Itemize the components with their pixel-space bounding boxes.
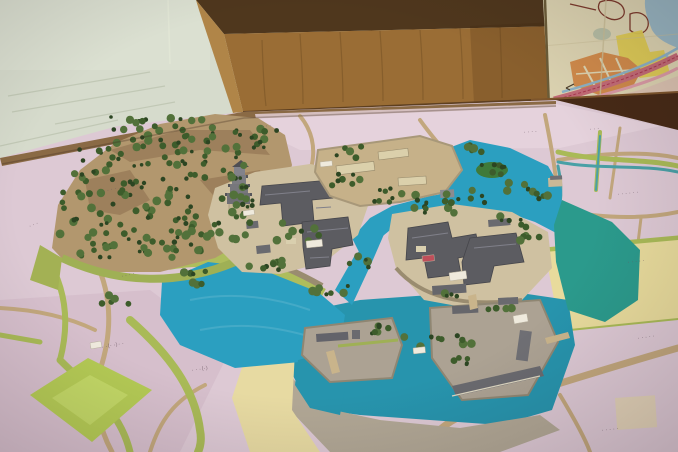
model-tree: [179, 117, 183, 121]
model-tree: [182, 215, 188, 221]
model-tree: [498, 171, 504, 177]
model-tree: [442, 198, 449, 205]
castle-town-model: · · · ·· · ·· · · ·· ·（· ·）· ·· · ·（·）· …: [0, 100, 678, 452]
model-tree: [163, 245, 171, 253]
model-tree: [209, 133, 216, 140]
model-tree: [222, 144, 230, 152]
model-tree: [161, 177, 166, 182]
model-tree: [423, 206, 429, 212]
wooden-cabinet: [196, 0, 564, 113]
model-tree: [145, 161, 151, 167]
model-tree: [131, 227, 137, 233]
model-tree: [183, 221, 188, 226]
model-tree: [137, 240, 142, 245]
red-label-tag: [422, 255, 435, 262]
model-tree: [120, 126, 127, 133]
model-tree: [121, 180, 128, 187]
model-tree: [175, 229, 182, 236]
model-tree: [492, 162, 497, 167]
model-tree: [162, 154, 168, 160]
model-tree: [240, 162, 247, 169]
model-tree: [465, 356, 470, 361]
model-tree: [519, 218, 523, 222]
model-tree: [543, 191, 552, 200]
model-tree: [354, 253, 362, 261]
model-tree: [276, 267, 281, 272]
model-tree: [188, 204, 193, 209]
model-tree: [138, 250, 142, 254]
model-tree: [234, 156, 238, 160]
model-tree: [180, 268, 188, 276]
model-tree: [456, 197, 460, 201]
model-tree: [132, 119, 139, 126]
model-tree: [250, 136, 254, 140]
south-building-4: [498, 297, 518, 305]
model-tree: [172, 239, 177, 244]
west-outbuilding-2: [256, 245, 271, 254]
model-tree: [328, 290, 334, 296]
model-tree: [188, 136, 195, 143]
model-tree: [76, 249, 84, 257]
model-tree: [173, 248, 179, 254]
model-tree: [250, 203, 255, 208]
white-label-tag: [306, 239, 323, 248]
model-tree: [534, 191, 540, 197]
model-tree: [139, 118, 146, 125]
model-tree: [429, 335, 433, 339]
south-building-2: [352, 330, 360, 339]
model-tree: [252, 145, 256, 149]
model-tree: [465, 362, 469, 366]
model-tree: [443, 190, 451, 198]
model-tree: [385, 325, 391, 331]
model-tree: [480, 163, 484, 167]
model-tree: [203, 269, 208, 274]
model-tree: [176, 236, 180, 240]
model-tree: [109, 115, 113, 119]
model-tree: [191, 272, 195, 276]
model-tree: [186, 195, 191, 200]
model-tree: [176, 216, 180, 220]
model-tree: [536, 196, 541, 201]
model-tree: [167, 114, 175, 122]
model-tree: [246, 219, 253, 226]
model-tree: [198, 281, 204, 287]
model-tree: [233, 130, 238, 135]
model-tree: [480, 194, 484, 198]
model-tree: [336, 178, 341, 183]
model-tree: [258, 140, 263, 145]
model-tree: [99, 223, 103, 227]
model-tree: [164, 199, 171, 206]
model-tree: [500, 219, 504, 223]
model-tree: [526, 188, 530, 192]
model-tree: [201, 174, 208, 181]
model-tree: [450, 209, 458, 217]
model-tree: [242, 231, 249, 238]
plot-label-text: · · · ·: [524, 129, 538, 136]
model-tree: [180, 159, 184, 163]
plot-label-text: · · ·: [590, 126, 600, 133]
model-tree: [279, 219, 286, 226]
model-tree: [244, 185, 249, 190]
model-tree: [112, 127, 117, 132]
diorama-scene: · · · ·· · ·· · · ·· ·（· ·）· ·· · ·（·）· …: [0, 0, 678, 452]
model-tree: [159, 142, 166, 149]
model-tree: [91, 170, 95, 174]
model-tree: [146, 215, 151, 220]
model-tree: [158, 138, 163, 143]
model-tree: [142, 181, 146, 185]
model-tree: [229, 191, 238, 200]
model-tree: [194, 246, 202, 254]
model-tree: [109, 154, 115, 160]
model-tree: [372, 329, 378, 335]
yellow-patch-corner: [615, 395, 657, 430]
model-tree: [250, 198, 254, 202]
model-tree: [189, 242, 193, 246]
model-tree: [233, 143, 241, 151]
model-tree: [274, 128, 279, 133]
model-tree: [228, 173, 236, 181]
model-tree: [469, 187, 476, 194]
model-tree: [203, 232, 212, 241]
model-tree: [470, 144, 479, 153]
model-tree: [98, 255, 103, 260]
model-tree: [415, 198, 420, 203]
model-tree: [376, 323, 381, 328]
model-tree: [516, 236, 525, 245]
model-tree: [181, 231, 189, 239]
model-tree: [299, 229, 304, 234]
model-tree: [140, 143, 146, 149]
model-tree: [273, 236, 282, 245]
cabinet-shade: [470, 22, 556, 104]
photo-museum-castle-diorama: · · · ·· · ·· · · ·· ·（· ·）· ·· · ·（·）· …: [0, 0, 678, 452]
model-tree: [193, 213, 199, 219]
model-tree: [212, 222, 218, 228]
model-tree: [346, 284, 350, 288]
model-tree: [110, 241, 118, 249]
model-tree: [192, 172, 198, 178]
model-tree: [167, 186, 173, 192]
model-tree: [329, 182, 335, 188]
model-tree: [398, 190, 405, 197]
model-tree: [356, 176, 363, 183]
model-tree: [72, 217, 77, 222]
model-tree: [262, 146, 266, 150]
model-tree: [136, 125, 144, 133]
model-tree: [238, 176, 242, 180]
model-tree: [132, 164, 136, 168]
model-tree: [390, 196, 394, 200]
model-tree: [455, 294, 460, 299]
model-tree: [285, 233, 292, 240]
model-tree: [80, 172, 85, 177]
model-tree: [118, 151, 124, 157]
model-tree: [61, 205, 67, 211]
white-label-tag: [413, 347, 426, 354]
model-tree: [366, 265, 371, 270]
model-tree: [116, 157, 120, 161]
model-tree: [410, 204, 418, 212]
model-tree: [233, 201, 241, 209]
model-tree: [448, 199, 455, 206]
model-tree: [503, 187, 511, 195]
wall-highlight: [0, 0, 210, 70]
model-tree: [505, 179, 513, 187]
model-tree: [228, 208, 237, 217]
model-tree: [502, 165, 506, 169]
model-tree: [159, 240, 165, 246]
model-tree: [467, 339, 476, 348]
model-tree: [174, 187, 178, 191]
model-tree: [383, 189, 388, 194]
model-tree: [455, 333, 460, 338]
model-tree: [335, 153, 339, 157]
model-tree: [144, 137, 152, 145]
model-tree: [180, 146, 188, 154]
model-tree: [56, 230, 65, 239]
model-tree: [140, 163, 144, 167]
model-tree: [172, 123, 178, 129]
model-tree: [117, 222, 123, 228]
model-tree: [246, 263, 253, 270]
model-tree: [105, 221, 109, 225]
model-tree: [353, 154, 360, 161]
model-tree: [308, 287, 317, 296]
model-tree: [378, 188, 382, 192]
model-tree: [140, 185, 144, 189]
model-tree: [166, 160, 172, 166]
model-tree: [482, 200, 487, 205]
model-tree: [121, 230, 128, 237]
model-tree: [240, 202, 245, 207]
model-tree: [468, 195, 474, 201]
model-tree: [102, 243, 110, 251]
model-tree: [324, 292, 328, 296]
model-tree: [60, 190, 66, 196]
model-tree: [346, 147, 354, 155]
model-tree: [125, 301, 131, 307]
model-tree: [388, 186, 392, 190]
model-tree: [347, 261, 352, 266]
model-tree: [143, 234, 151, 242]
model-tree: [246, 205, 250, 209]
model-tree: [111, 295, 119, 303]
model-tree: [229, 235, 237, 243]
stream-gatehouse: [548, 175, 562, 187]
model-tree: [526, 235, 532, 241]
model-tree: [502, 305, 509, 312]
model-tree: [152, 197, 161, 206]
model-tree: [449, 292, 453, 296]
model-tree: [188, 117, 195, 124]
model-tree: [507, 218, 512, 223]
model-tree: [221, 168, 227, 174]
model-tree: [149, 238, 155, 244]
plot-label-text: · · ·: [262, 123, 272, 130]
model-tree: [424, 201, 428, 205]
east-cream-building: [416, 246, 426, 252]
model-tree: [117, 190, 123, 196]
model-tree: [71, 170, 78, 177]
model-tree: [451, 357, 458, 364]
model-tree: [127, 237, 131, 241]
model-tree: [60, 200, 66, 206]
model-tree: [176, 141, 180, 145]
model-tree: [206, 140, 210, 144]
model-tree: [215, 228, 223, 236]
model-tree: [336, 172, 341, 177]
model-tree: [243, 195, 250, 202]
model-tree: [198, 116, 205, 123]
model-tree: [270, 261, 277, 268]
model-tree: [190, 150, 194, 154]
white-label-tag: [320, 161, 332, 167]
model-tree: [81, 158, 86, 163]
model-tree: [339, 289, 347, 297]
model-tree: [423, 211, 427, 215]
model-tree: [436, 336, 441, 341]
model-tree: [387, 199, 392, 204]
model-tree: [184, 176, 188, 180]
model-tree: [87, 204, 96, 213]
model-tree: [133, 143, 141, 151]
model-tree: [400, 333, 408, 341]
model-tree: [152, 123, 158, 129]
model-tree: [77, 192, 85, 200]
model-tree: [315, 232, 322, 239]
model-tree: [219, 195, 226, 202]
model-tree: [182, 133, 188, 139]
model-tree: [201, 161, 207, 167]
model-tree: [358, 144, 364, 150]
model-tree: [99, 300, 106, 307]
model-tree: [349, 181, 355, 187]
model-tree: [103, 230, 109, 236]
model-tree: [351, 173, 355, 177]
model-tree: [240, 186, 244, 190]
model-tree: [202, 154, 207, 159]
model-tree: [486, 306, 492, 312]
model-tree: [310, 224, 318, 232]
model-tree: [185, 208, 191, 214]
model-tree: [493, 305, 500, 312]
model-tree: [173, 161, 181, 169]
model-tree: [106, 146, 112, 152]
model-tree: [130, 182, 135, 187]
model-tree: [111, 202, 116, 207]
model-tree: [97, 210, 104, 217]
model-tree: [96, 147, 103, 154]
model-tree: [478, 149, 485, 156]
model-tree: [86, 190, 93, 197]
model-tree: [84, 234, 91, 241]
model-tree: [376, 198, 382, 204]
model-tree: [459, 337, 465, 343]
model-tree: [278, 257, 286, 265]
model-tree: [364, 258, 368, 262]
model-tree: [489, 169, 496, 176]
model-tree: [238, 133, 242, 137]
model-tree: [90, 241, 96, 247]
model-tree: [106, 161, 112, 167]
model-tree: [91, 247, 97, 253]
model-tree: [144, 249, 152, 257]
model-tree: [363, 257, 372, 266]
map-gray-zone: [593, 28, 611, 40]
model-tree: [107, 255, 111, 259]
model-tree: [110, 177, 115, 182]
model-tree: [536, 234, 543, 241]
model-tree: [260, 265, 266, 271]
model-tree: [169, 228, 174, 233]
model-tree: [189, 278, 197, 286]
model-tree: [168, 254, 175, 261]
model-tree: [133, 207, 140, 214]
model-tree: [518, 222, 524, 228]
model-tree: [445, 294, 449, 298]
model-tree: [142, 203, 149, 210]
